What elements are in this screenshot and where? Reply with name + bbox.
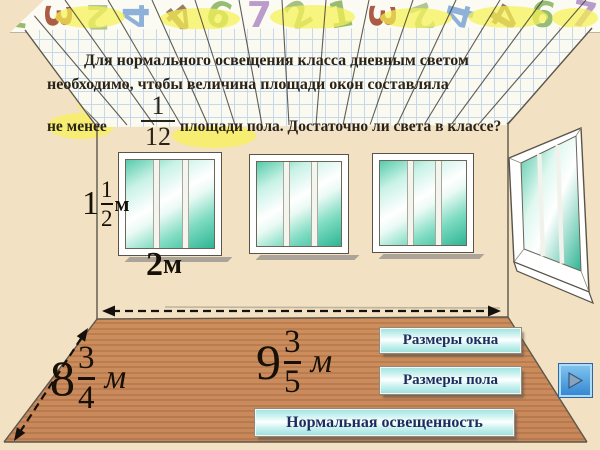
window-size-button[interactable]: Размеры окна [380, 328, 521, 353]
label-denominator: 5 [284, 366, 301, 399]
label-numerator: 3 [284, 326, 301, 359]
slide: 132446721324467 [0, 0, 600, 450]
problem-text-line1: Для нормального освещения класса дневным… [84, 52, 469, 70]
next-slide-button[interactable] [558, 363, 593, 398]
label-whole: 8 [50, 353, 75, 403]
floor-size-button[interactable]: Размеры пола [380, 367, 521, 394]
label-numerator: 1 [101, 178, 113, 201]
problem-text-line2: необходимо, чтобы величина площади окон … [47, 76, 449, 94]
floor-width-label: 8 3 4 м [50, 342, 126, 415]
play-arrow-icon [568, 372, 584, 389]
fraction-numerator: 1 [139, 92, 177, 119]
label-denominator: 2 [101, 207, 113, 230]
label-unit: м [311, 345, 333, 379]
label-value: 2 [146, 248, 163, 282]
normal-lighting-button[interactable]: Нормальная освещенность [255, 409, 514, 436]
label-unit: м [163, 251, 182, 279]
label-whole: 9 [256, 337, 281, 387]
problem-text-line3-prefix: не менее [47, 118, 107, 136]
fraction-denominator: 12 [139, 123, 177, 150]
window-height-label: 1 1 2 м [82, 178, 130, 230]
label-unit: м [105, 361, 127, 395]
label-fraction-bar [101, 203, 113, 205]
floor-length-label: 9 3 5 м [256, 326, 332, 399]
window-width-label: 2 м [146, 248, 182, 282]
label-whole: 1 [82, 187, 99, 221]
fraction-one-twelfth: 1 12 [139, 92, 177, 151]
problem-text-line3-suffix: площади пола. Достаточно ли света в клас… [180, 118, 501, 136]
label-numerator: 3 [78, 342, 95, 375]
label-denominator: 4 [78, 382, 95, 415]
label-unit: м [115, 193, 130, 215]
